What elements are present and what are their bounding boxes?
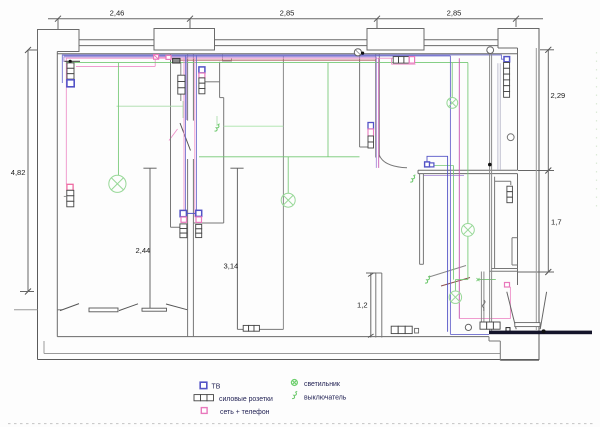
svg-text:2,85: 2,85 [280, 8, 295, 17]
svg-text:светильник: светильник [304, 381, 341, 388]
svg-text:2,46: 2,46 [110, 8, 125, 17]
svg-text:выключатель: выключатель [304, 395, 347, 402]
svg-text:4,82: 4,82 [11, 168, 26, 177]
svg-text:2,85: 2,85 [447, 8, 462, 17]
svg-text:3,14: 3,14 [224, 262, 239, 271]
svg-text:силовые розетки: силовые розетки [219, 396, 273, 403]
svg-text:ТВ: ТВ [212, 384, 221, 391]
svg-text:1,7: 1,7 [551, 218, 562, 227]
svg-text:1,2: 1,2 [357, 301, 368, 310]
svg-text:2,29: 2,29 [551, 91, 566, 100]
svg-text:2,44: 2,44 [136, 246, 151, 255]
svg-text:сеть + телефон: сеть + телефон [220, 409, 270, 416]
